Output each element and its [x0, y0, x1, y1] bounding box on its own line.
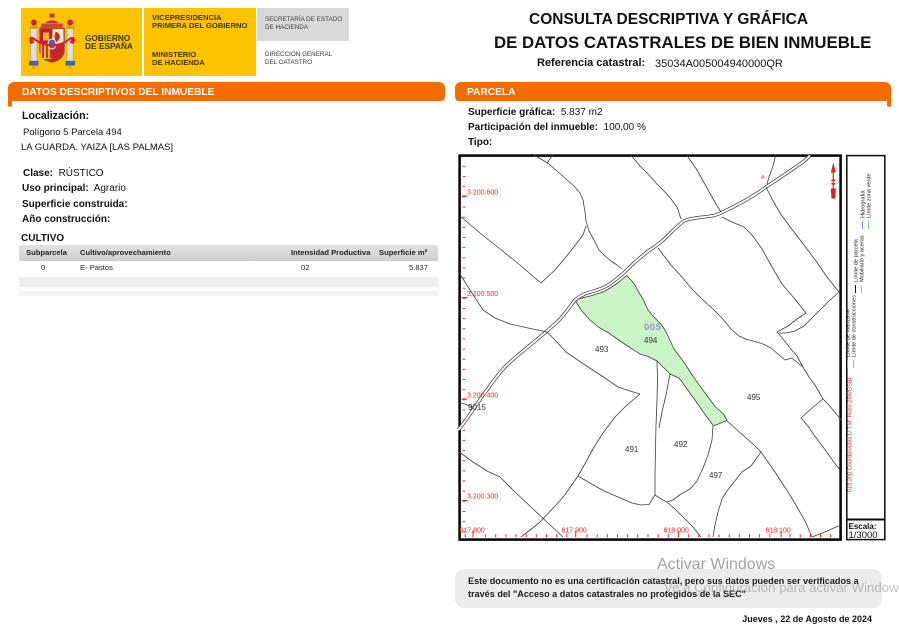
svg-text:491: 491	[625, 445, 639, 454]
svg-text:618.000: 618.000	[664, 528, 689, 535]
svg-text:493: 493	[595, 345, 609, 354]
svg-text:492: 492	[674, 440, 688, 449]
svg-text:3.200.300: 3.200.300	[467, 494, 498, 501]
svg-text:3.200.500: 3.200.500	[467, 291, 498, 298]
svg-text:Límite de construcciones: Límite de construcciones	[852, 295, 858, 357]
svg-text:497: 497	[709, 471, 723, 480]
svg-text:A: A	[761, 175, 765, 181]
svg-text:618.200 Coordenadas U.T.M. Hus: 618.200 Coordenadas U.T.M. Huso 28WGS84	[848, 377, 854, 492]
svg-text:Límite zona verde: Límite zona verde	[867, 174, 873, 218]
svg-text:494: 494	[644, 336, 658, 345]
svg-text:617.800: 617.800	[460, 528, 485, 535]
svg-text:9015: 9015	[468, 403, 486, 412]
svg-text:495: 495	[747, 393, 761, 402]
svg-text:618.100: 618.100	[766, 528, 791, 535]
svg-text:1/3000: 1/3000	[849, 530, 878, 541]
svg-text:3.200.400: 3.200.400	[467, 393, 498, 400]
svg-text:3.200.600: 3.200.600	[467, 190, 498, 197]
svg-text:617.900: 617.900	[562, 528, 587, 535]
svg-text:005: 005	[644, 322, 662, 333]
svg-text:Mobiliario y aceras: Mobiliario y aceras	[860, 235, 866, 282]
